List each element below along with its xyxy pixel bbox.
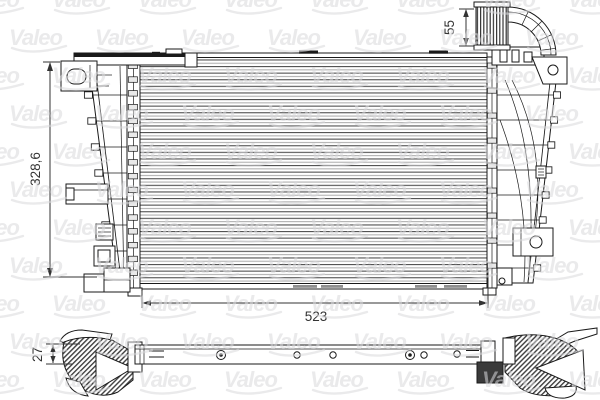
- valeo-watermark: Valeo: [482, 139, 535, 164]
- valeo-watermark: Valeo: [439, 25, 492, 50]
- valeo-watermark: Valeo: [95, 25, 148, 50]
- valeo-watermark: Valeo: [353, 177, 406, 202]
- valeo-watermark: Valeo: [0, 215, 19, 240]
- valeo-watermark: Valeo: [396, 215, 449, 240]
- valeo-watermark: Valeo: [95, 177, 148, 202]
- valeo-watermark: Valeo: [52, 63, 105, 88]
- intercooler-technical-drawing: 328,6 55 523 27 ValeoValeoVale: [0, 0, 600, 400]
- valeo-watermark: Valeo: [267, 101, 320, 126]
- bottom-plate-slot: [444, 285, 467, 288]
- valeo-watermark: Valeo: [181, 25, 234, 50]
- valeo-watermark: Valeo: [138, 63, 191, 88]
- valeo-watermark: Valeo: [9, 253, 62, 278]
- valeo-watermark: Valeo: [439, 253, 492, 278]
- valeo-watermark: Valeo: [568, 215, 600, 240]
- valeo-watermark: Valeo: [482, 291, 535, 316]
- valeo-watermark: Valeo: [396, 291, 449, 316]
- valeo-watermark: Valeo: [181, 177, 234, 202]
- valeo-watermark: Valeo: [568, 291, 600, 316]
- valeo-watermark: Valeo: [224, 367, 277, 392]
- valeo-watermark: Valeo: [181, 329, 234, 354]
- valeo-watermark: Valeo: [439, 177, 492, 202]
- valeo-watermark: Valeo: [525, 25, 578, 50]
- valeo-watermark: Valeo: [52, 215, 105, 240]
- valeo-watermark: Valeo: [310, 291, 363, 316]
- valeo-watermark: Valeo: [138, 367, 191, 392]
- valeo-watermark: Valeo: [310, 367, 363, 392]
- valeo-watermark: Valeo: [95, 253, 148, 278]
- valeo-watermark: Valeo: [95, 101, 148, 126]
- valeo-watermark: Valeo: [138, 139, 191, 164]
- valeo-watermark: Valeo: [9, 101, 62, 126]
- valeo-watermark: Valeo: [353, 101, 406, 126]
- valeo-watermark: Valeo: [224, 139, 277, 164]
- valeo-watermark: Valeo: [568, 367, 600, 392]
- valeo-watermark: Valeo: [224, 291, 277, 316]
- catalog-part-image: { "brand": { "watermark_text": "Valeo", …: [0, 0, 600, 400]
- valeo-watermark: Valeo: [310, 215, 363, 240]
- core-top-tab: [429, 51, 448, 54]
- valeo-watermark: Valeo: [224, 63, 277, 88]
- valeo-watermark: Valeo: [9, 329, 62, 354]
- valeo-watermark: Valeo: [525, 101, 578, 126]
- valeo-watermark: Valeo: [482, 63, 535, 88]
- valeo-watermark: Valeo: [267, 329, 320, 354]
- bottom-plate-slot: [415, 285, 437, 288]
- valeo-watermark: Valeo: [181, 101, 234, 126]
- valeo-watermark: Valeo: [138, 215, 191, 240]
- valeo-watermark: Valeo: [439, 329, 492, 354]
- valeo-watermark: Valeo: [396, 139, 449, 164]
- valeo-watermark: Valeo: [568, 139, 600, 164]
- bottom-plate-slot: [293, 285, 317, 288]
- valeo-watermark: Valeo: [310, 63, 363, 88]
- valeo-watermark: Valeo: [568, 63, 600, 88]
- valeo-watermark: Valeo: [95, 329, 148, 354]
- valeo-watermark: Valeo: [224, 215, 277, 240]
- valeo-watermark: Valeo: [9, 177, 62, 202]
- valeo-watermark: Valeo: [52, 367, 105, 392]
- valeo-watermark: Valeo: [310, 139, 363, 164]
- valeo-watermark: Valeo: [525, 177, 578, 202]
- valeo-watermark: Valeo: [0, 367, 19, 392]
- valeo-watermark: Valeo: [0, 139, 19, 164]
- valeo-watermark: Valeo: [0, 63, 19, 88]
- valeo-watermark: Valeo: [439, 101, 492, 126]
- valeo-watermark: Valeo: [181, 253, 234, 278]
- valeo-watermark: Valeo: [482, 367, 535, 392]
- valeo-watermark: Valeo: [525, 253, 578, 278]
- valeo-watermark: Valeo: [525, 329, 578, 354]
- valeo-watermark: Valeo: [9, 25, 62, 50]
- core-fins: [140, 58, 487, 284]
- valeo-watermark: Valeo: [353, 329, 406, 354]
- bottom-plate-slot: [321, 285, 343, 288]
- valeo-watermark: Valeo: [353, 25, 406, 50]
- valeo-watermark: Valeo: [0, 291, 19, 316]
- valeo-watermark: Valeo: [396, 63, 449, 88]
- valeo-watermark: Valeo: [52, 291, 105, 316]
- valeo-watermark: Valeo: [138, 291, 191, 316]
- valeo-watermark: Valeo: [52, 139, 105, 164]
- valeo-watermark: Valeo: [396, 367, 449, 392]
- valeo-watermark: Valeo: [267, 25, 320, 50]
- valeo-watermark: Valeo: [482, 215, 535, 240]
- valeo-watermark: Valeo: [353, 253, 406, 278]
- valeo-watermark: Valeo: [267, 253, 320, 278]
- valeo-watermark: Valeo: [267, 177, 320, 202]
